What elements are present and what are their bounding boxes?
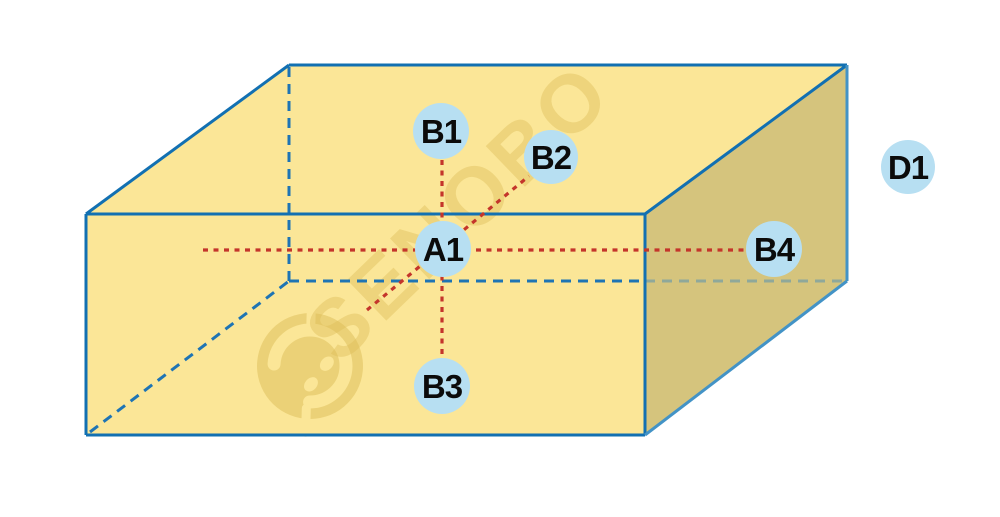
box-diagram: SENOBOA1B1B2B3B4D1 <box>0 0 1000 517</box>
point-node-A1: A1 <box>415 221 471 277</box>
point-label-B1: B1 <box>421 113 462 150</box>
point-node-B3: B3 <box>414 358 470 414</box>
point-label-A1: A1 <box>423 231 464 268</box>
point-node-D1: D1 <box>881 140 935 194</box>
point-node-B2: B2 <box>524 130 578 184</box>
point-node-B1: B1 <box>413 103 469 159</box>
point-label-B4: B4 <box>754 231 796 268</box>
point-node-B4: B4 <box>746 221 802 277</box>
point-label-B2: B2 <box>531 139 572 176</box>
point-label-B3: B3 <box>422 368 463 405</box>
diagram-stage: SENOBOA1B1B2B3B4D1 <box>0 0 1000 517</box>
point-label-D1: D1 <box>888 149 929 186</box>
